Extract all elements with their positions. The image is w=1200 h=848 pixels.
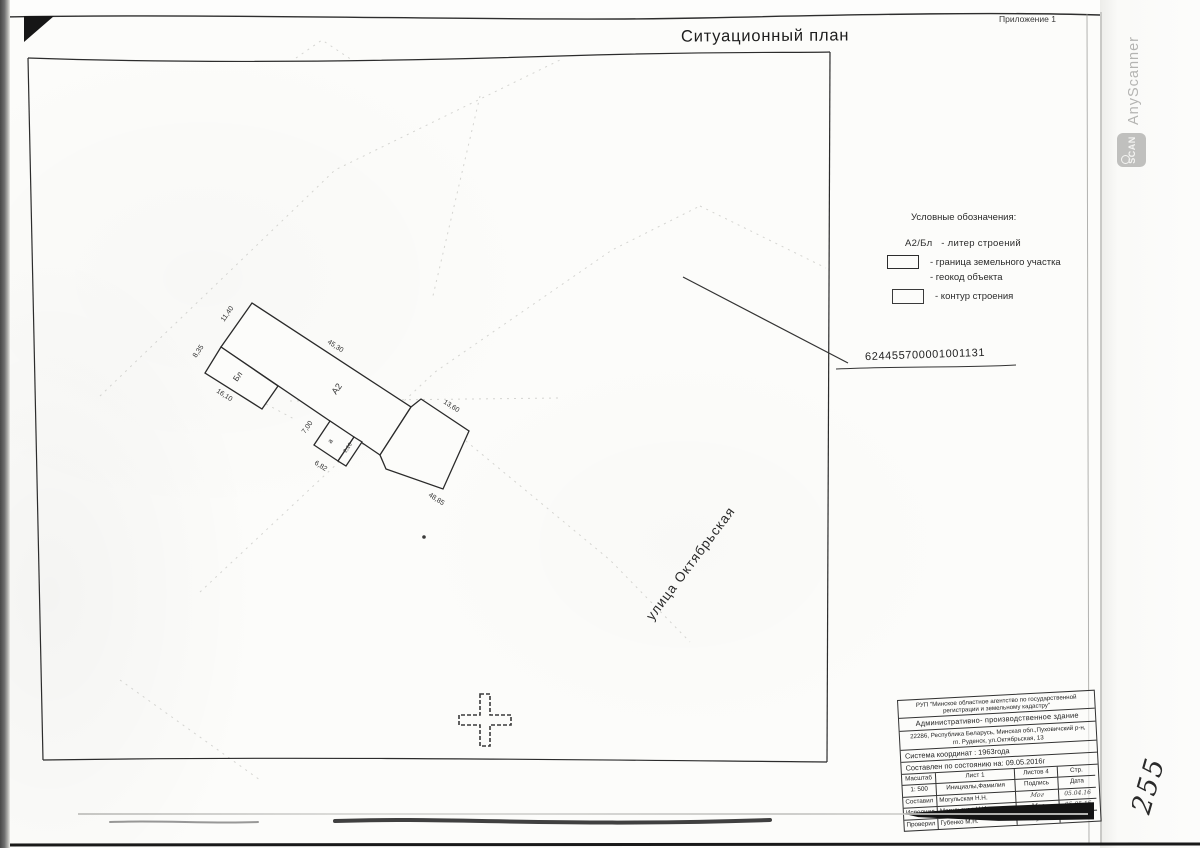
scanned-document: 11,40 8,35 16,10 45,30 13,60 7,00 6,82 2…: [0, 0, 1200, 848]
title-block-table: Масштаб Лист 1 Листов 4 Стр. 1: 500 Иниц…: [902, 764, 1101, 831]
legend-item-geocode: - геокод объекта: [930, 272, 1140, 283]
legend: Условные обозначения: А2/Бл - литер стро…: [885, 212, 1140, 304]
legend-boundary-label: - граница земельного участка: [930, 257, 1061, 268]
legend-item-contour: - контур строения: [885, 289, 1140, 304]
anyscanner-watermark: AnyScanner: [1126, 45, 1142, 125]
dim-7-00: 7,00: [301, 420, 315, 435]
legend-title: Условные обозначения:: [911, 212, 1140, 223]
dim-45-30: 45,30: [326, 339, 345, 354]
bottom-smudge-left: [110, 821, 258, 822]
annex-label: Приложение 1: [999, 14, 1056, 24]
scan-logo-icon: SCAN: [1117, 133, 1146, 167]
geocode-dot: [422, 535, 426, 539]
bottom-smudge: [335, 820, 770, 823]
paper-fold-shadow: [78, 813, 1088, 815]
dim-11-40: 11,40: [220, 305, 236, 323]
contour-symbol-icon: [892, 289, 924, 304]
legend-liter-label: - литер строений: [941, 238, 1021, 249]
legend-liter-symbol: А2/Бл: [905, 238, 932, 249]
coordinate-cross: [459, 694, 511, 746]
legend-item-boundary: - граница земельного участка: [885, 255, 1140, 269]
bleedthrough-lines: [100, 40, 826, 780]
signature-scribble: Мог: [1030, 790, 1045, 801]
dim-13-60: 13,60: [442, 399, 461, 414]
dim-8-35: 8,35: [192, 344, 206, 359]
legend-contour-label: - контур строения: [935, 291, 1013, 302]
boundary-symbol-icon: [887, 255, 919, 269]
scan-edge-left: [0, 0, 10, 848]
dim-48-85: 48,85: [427, 492, 446, 507]
paper-bottom-edge: [0, 844, 1200, 845]
dim-16-10: 16,10: [215, 388, 234, 403]
row-role: Проверил: [904, 819, 939, 831]
paper-top-edge: [0, 14, 1100, 19]
scan-logo-circle-icon: [1121, 155, 1130, 164]
scan-logo-text: SCAN: [1127, 128, 1137, 172]
legend-item-liter: А2/Бл - литер строений: [905, 238, 1140, 249]
scan-artifact-corner: [24, 16, 54, 42]
page-title: Ситуационный план: [681, 26, 849, 46]
dim-6-82: 6,82: [313, 460, 328, 473]
